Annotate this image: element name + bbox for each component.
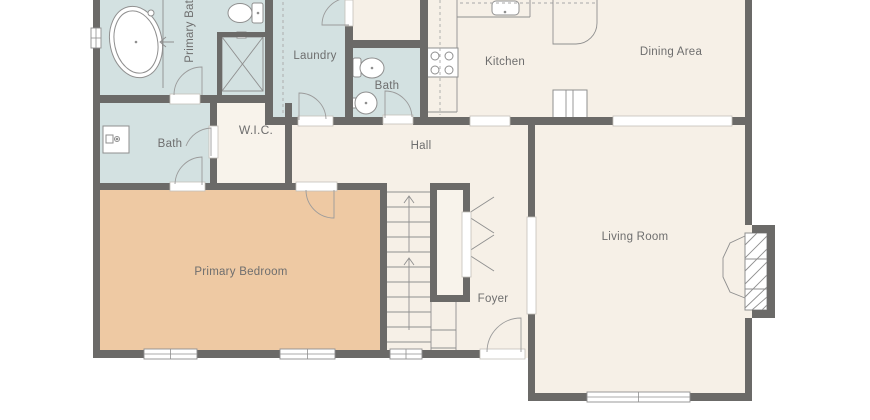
fixture-dot bbox=[257, 12, 260, 15]
wall-segment bbox=[335, 350, 390, 358]
wall-segment bbox=[265, 0, 273, 125]
fixture-dot bbox=[371, 67, 374, 70]
wall-segment bbox=[422, 350, 480, 358]
tub-faucet bbox=[148, 10, 154, 16]
wall-segment bbox=[217, 32, 265, 37]
door-opening-jamb bbox=[345, 0, 353, 26]
wall-segment bbox=[333, 117, 383, 125]
wall-segment bbox=[745, 0, 752, 225]
wall-segment bbox=[528, 122, 535, 218]
wall-segment bbox=[767, 225, 775, 318]
door-opening-jamb bbox=[298, 116, 333, 126]
wall-segment bbox=[265, 117, 298, 125]
wall-segment bbox=[420, 0, 428, 125]
wall-segment bbox=[96, 95, 170, 103]
burner-3 bbox=[431, 66, 439, 74]
wall-segment bbox=[337, 183, 387, 190]
wall-segment bbox=[345, 48, 353, 122]
door-opening-jamb bbox=[527, 217, 536, 314]
door-opening-jamb bbox=[170, 94, 200, 104]
fixture-dot bbox=[116, 138, 119, 141]
wall-segment bbox=[510, 117, 613, 125]
door-opening-jamb bbox=[462, 212, 471, 277]
burner-4 bbox=[445, 66, 453, 74]
wall-segment bbox=[210, 103, 217, 127]
laundry-floor bbox=[265, 0, 353, 122]
wall-segment bbox=[413, 117, 470, 125]
wall-segment bbox=[463, 183, 470, 213]
wall-segment bbox=[197, 350, 280, 358]
closet-interior bbox=[437, 190, 463, 295]
wall-segment bbox=[217, 32, 222, 98]
pb-toilet-bowl bbox=[228, 4, 252, 23]
wall-segment bbox=[528, 393, 587, 401]
wall-segment bbox=[93, 183, 170, 190]
fridge-cabinet bbox=[553, 90, 587, 118]
floor-plan: Primary Bath Laundry Bath Kitchen Dining… bbox=[0, 0, 870, 420]
wall-segment bbox=[345, 40, 428, 48]
wall-segment bbox=[205, 183, 296, 190]
wall-segment bbox=[96, 350, 144, 358]
living-floor bbox=[528, 117, 752, 401]
wall-segment bbox=[690, 393, 752, 401]
bedroom-floor bbox=[100, 183, 387, 358]
wall-segment bbox=[200, 95, 265, 103]
wall-segment bbox=[463, 276, 470, 302]
wall-segment bbox=[528, 313, 535, 401]
fixture-dot bbox=[365, 102, 368, 105]
vanity-soap bbox=[106, 135, 113, 143]
wall-segment bbox=[430, 183, 437, 302]
wall-segment bbox=[93, 48, 100, 358]
door-opening-jamb bbox=[296, 182, 337, 191]
wall-segment bbox=[745, 318, 752, 401]
floor-plan-drawing bbox=[0, 0, 870, 420]
wall-segment bbox=[93, 0, 100, 28]
wall-segment bbox=[210, 157, 217, 183]
fixture-dot bbox=[504, 11, 507, 14]
door-opening-jamb bbox=[209, 126, 218, 158]
wall-segment bbox=[285, 103, 292, 190]
door-opening-jamb bbox=[383, 115, 413, 124]
door-opening-jamb bbox=[613, 116, 732, 126]
burner-1 bbox=[431, 52, 439, 60]
firebox bbox=[745, 233, 767, 310]
door-opening-jamb bbox=[470, 116, 510, 126]
wall-segment bbox=[752, 310, 775, 318]
burner-2 bbox=[445, 52, 453, 60]
wall-segment bbox=[380, 183, 387, 350]
fixture-dot bbox=[135, 41, 138, 44]
